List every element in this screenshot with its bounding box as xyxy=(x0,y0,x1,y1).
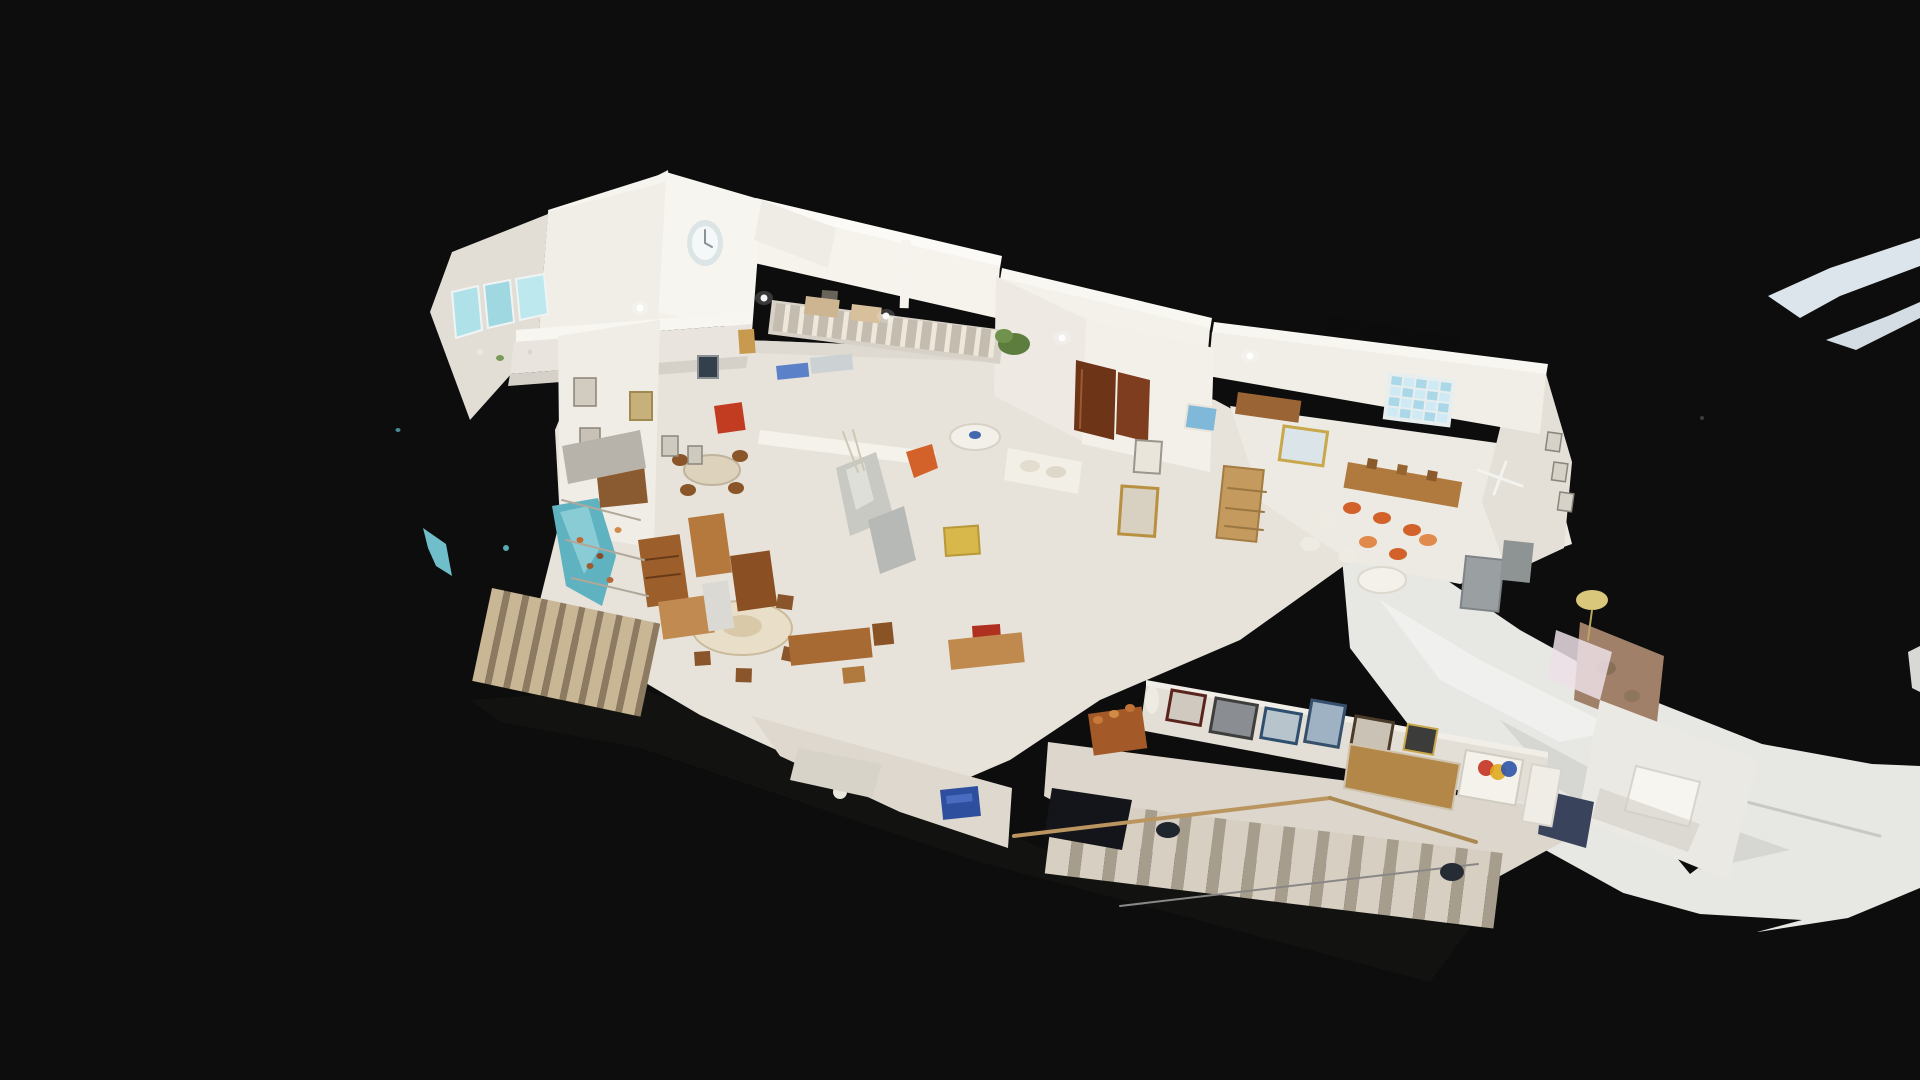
table-tulip xyxy=(1358,567,1406,593)
gallery-frame-3 xyxy=(1261,708,1302,744)
chair-dining-2 xyxy=(776,594,794,610)
chair-director-blue xyxy=(940,786,981,820)
gallery-frame-2 xyxy=(1210,698,1257,739)
ceiling-light-2 xyxy=(761,295,768,302)
viewer-canvas xyxy=(0,0,1920,1080)
sofa-cushion-1 xyxy=(1020,460,1040,472)
shoe-1 xyxy=(577,537,584,543)
window-teal-1 xyxy=(452,286,482,338)
chair-shell-orange-4 xyxy=(1359,536,1377,548)
armoire-dark-2 xyxy=(1116,372,1150,442)
chair-shell-white-2 xyxy=(1300,537,1320,551)
chair-dining-3 xyxy=(694,651,711,666)
dust-speck-1 xyxy=(396,428,401,432)
frame-right-wall-3 xyxy=(1557,492,1573,512)
plant-large-top xyxy=(995,329,1013,343)
glass-shard-dot xyxy=(503,545,509,551)
chair-shell-orange-3 xyxy=(1403,524,1421,536)
stool-wood xyxy=(842,666,866,684)
chair-shell-orange-2 xyxy=(1373,512,1391,524)
bookshelf-pine xyxy=(1216,466,1263,542)
frame-white-mat xyxy=(1134,440,1162,474)
console-item-2 xyxy=(1396,464,1408,476)
shoe-4 xyxy=(587,563,594,569)
ceiling-light-3 xyxy=(883,313,890,320)
frame-small-1 xyxy=(662,436,678,456)
window-glass-block xyxy=(1383,372,1456,428)
sofa-cushion-2 xyxy=(1046,466,1066,478)
console-item-3 xyxy=(1426,470,1438,482)
mannequin-white xyxy=(1145,686,1159,714)
cart-metal xyxy=(1461,556,1504,612)
ceiling-light-4 xyxy=(1059,335,1066,342)
chair-dining-5 xyxy=(736,668,752,683)
gallery-frame-6 xyxy=(1403,724,1437,755)
painting-seascape xyxy=(1185,404,1218,432)
window-teal-3 xyxy=(516,274,548,320)
pot-copper-3 xyxy=(1125,704,1135,712)
chair-cane xyxy=(738,329,756,354)
shoe-3 xyxy=(615,527,622,533)
poster-color-wheel xyxy=(1458,750,1523,805)
frame-left-1 xyxy=(574,378,596,406)
chair-shell-white-1 xyxy=(1316,513,1336,527)
frame-right-wall-2 xyxy=(1551,462,1567,482)
chair-shell-orange-1 xyxy=(1343,502,1361,514)
dresser-walnut-3 xyxy=(730,550,777,611)
cabinet-grey xyxy=(1500,540,1534,583)
chair-t2-4 xyxy=(728,482,744,494)
gallery-frame-1 xyxy=(1167,690,1206,725)
chair-red xyxy=(714,402,746,434)
frame-right-wall-1 xyxy=(1545,432,1561,452)
bag-on-stairs-2 xyxy=(1440,863,1464,881)
ceiling-light-5 xyxy=(1247,353,1254,360)
pot-copper-2 xyxy=(1109,710,1119,718)
dollhouse-3d-view[interactable] xyxy=(0,0,1920,1080)
dust-speck-3 xyxy=(1700,416,1704,420)
lamp-amber xyxy=(1576,590,1608,610)
window-teal-2 xyxy=(484,280,514,328)
shoe-2 xyxy=(597,553,604,559)
chair-shell-orange-5 xyxy=(1389,548,1407,560)
mirror-gilt xyxy=(1119,486,1158,536)
bag-on-stairs-1 xyxy=(1156,822,1180,838)
poster-circle-blue xyxy=(1501,761,1517,777)
frame-dark-tv xyxy=(698,356,718,378)
bowl-blue xyxy=(969,431,981,439)
shoe-5 xyxy=(607,577,614,583)
balcony-item-2 xyxy=(528,350,533,355)
wall-plaster-mottle-2 xyxy=(1624,690,1640,702)
chair-t2-3 xyxy=(680,484,696,496)
console-item-1 xyxy=(1366,458,1378,470)
gallery-frame-4 xyxy=(1305,700,1346,747)
chair-shell-orange-6 xyxy=(1419,534,1437,546)
chair-side xyxy=(872,622,894,646)
ceiling-light-1 xyxy=(637,305,644,312)
art-yellow xyxy=(944,526,980,556)
chair-shell-white-3 xyxy=(1338,549,1358,563)
balcony-item-1 xyxy=(477,349,483,355)
pot-copper-1 xyxy=(1093,716,1103,724)
art-gold-left xyxy=(630,392,652,420)
chair-t2-2 xyxy=(732,450,748,462)
balcony-plant xyxy=(496,355,504,361)
frame-small-2 xyxy=(688,446,702,464)
painting-gilt xyxy=(1279,426,1327,466)
